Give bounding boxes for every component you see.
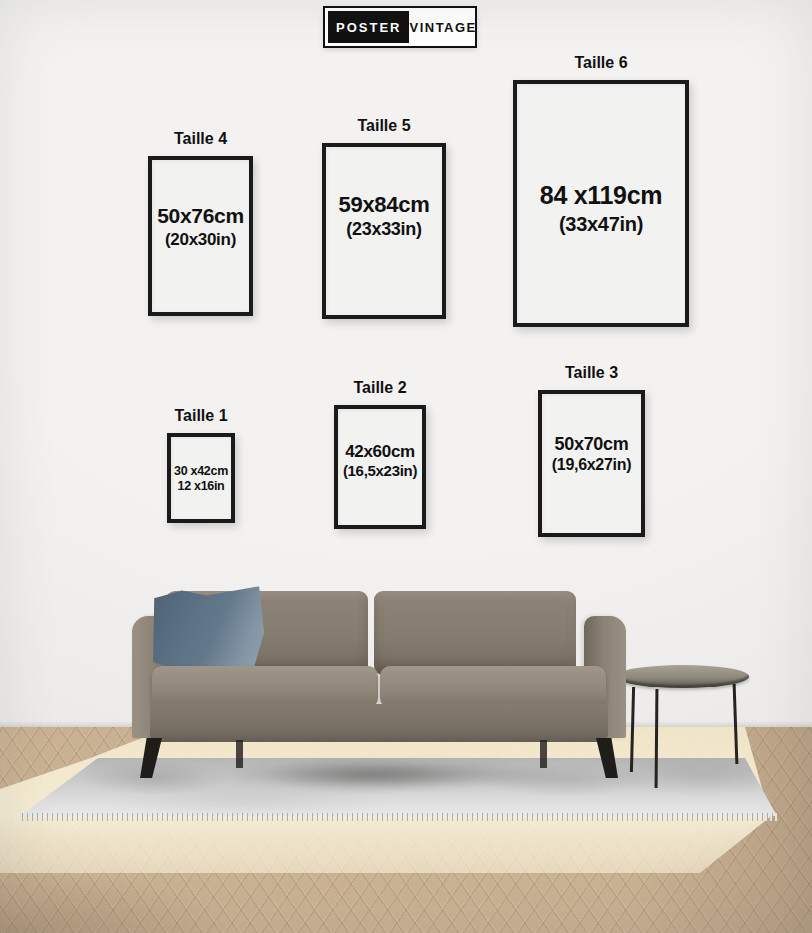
sofa-seat-cushion-left bbox=[152, 666, 378, 708]
sofa-leg bbox=[236, 740, 243, 768]
sofa-leg bbox=[540, 740, 547, 768]
size-label: Taille 4 bbox=[128, 130, 273, 148]
size-inches: (23x33in) bbox=[326, 218, 442, 241]
size-label: Taille 6 bbox=[493, 54, 709, 72]
size-label: Taille 1 bbox=[147, 407, 255, 425]
poster-size-guide-graphic: POSTER VINTAGE Taille 4 50x76cm (20x30in… bbox=[0, 0, 812, 933]
size-cm: 84 x119cm bbox=[517, 180, 685, 211]
size-card-taille-5: Taille 5 59x84cm (23x33in) bbox=[322, 143, 446, 319]
poster-frame: 84 x119cm (33x47in) bbox=[513, 80, 689, 327]
brand-logo-vintage: VINTAGE bbox=[409, 11, 476, 43]
brand-logo: POSTER VINTAGE bbox=[323, 6, 477, 48]
rug-fringe bbox=[20, 813, 777, 821]
poster-frame: 50x70cm (19,6x27in) bbox=[538, 390, 645, 537]
size-cm: 50x76cm bbox=[152, 203, 249, 229]
sofa-back-cushion-right bbox=[374, 591, 576, 675]
sofa-shadow bbox=[140, 756, 630, 794]
poster-frame: 59x84cm (23x33in) bbox=[322, 143, 446, 319]
size-cm: 30 x42cm bbox=[171, 464, 231, 480]
poster-frame: 30 x42cm 12 x16in bbox=[167, 433, 235, 523]
size-card-taille-3: Taille 3 50x70cm (19,6x27in) bbox=[538, 390, 645, 537]
size-inches: (33x47in) bbox=[517, 211, 685, 236]
brand-logo-poster: POSTER bbox=[328, 11, 409, 43]
size-cm: 59x84cm bbox=[326, 191, 442, 219]
poster-frame: 42x60cm (16,5x23in) bbox=[334, 405, 426, 529]
size-inches: (16,5x23in) bbox=[338, 462, 422, 481]
size-card-taille-2: Taille 2 42x60cm (16,5x23in) bbox=[334, 405, 426, 529]
size-cm: 50x70cm bbox=[542, 433, 641, 456]
size-card-taille-4: Taille 4 50x76cm (20x30in) bbox=[148, 156, 253, 316]
poster-frame: 50x76cm (20x30in) bbox=[148, 156, 253, 316]
size-card-taille-6: Taille 6 84 x119cm (33x47in) bbox=[513, 80, 689, 327]
size-inches: (20x30in) bbox=[152, 229, 249, 250]
throw-pillow bbox=[151, 586, 266, 674]
size-cm: 42x60cm bbox=[338, 441, 422, 462]
size-inches: 12 x16in bbox=[171, 480, 231, 496]
size-label: Taille 2 bbox=[314, 379, 446, 397]
side-table-top bbox=[616, 665, 749, 688]
sofa-seat-cushion-right bbox=[380, 666, 606, 708]
size-inches: (19,6x27in) bbox=[542, 455, 641, 475]
sofa-base bbox=[150, 704, 608, 742]
size-label: Taille 5 bbox=[302, 117, 466, 135]
size-label: Taille 3 bbox=[518, 364, 665, 382]
size-card-taille-1: Taille 1 30 x42cm 12 x16in bbox=[167, 433, 235, 523]
